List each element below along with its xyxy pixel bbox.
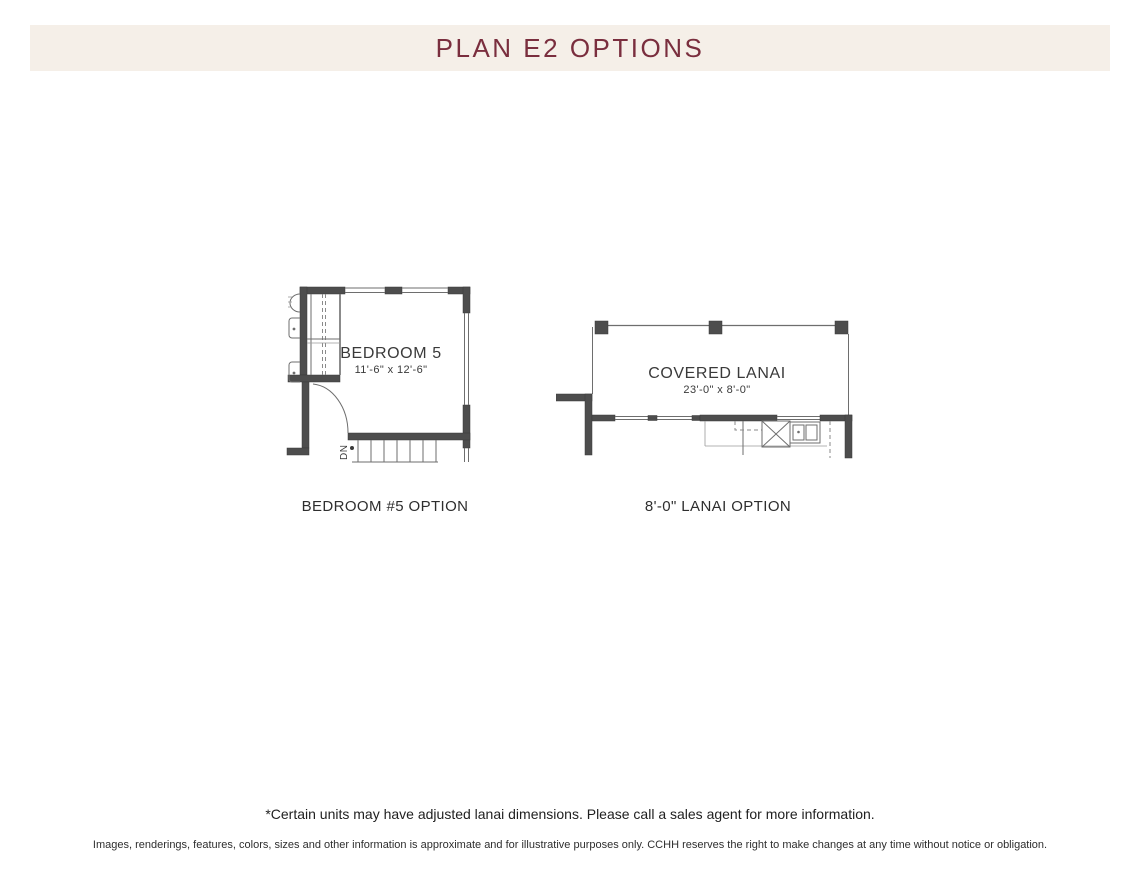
plan-options-page: PLAN E2 OPTIONS	[0, 0, 1140, 880]
lanai-room-dimensions: 23'-0" x 8'-0"	[683, 384, 750, 396]
footnote-text: *Certain units may have adjusted lanai d…	[0, 806, 1140, 822]
bedroom-top-wall	[300, 287, 470, 294]
bedroom-bottom-wall	[348, 433, 470, 440]
bedroom-room-label: BEDROOM 5	[340, 345, 441, 362]
bedroom-closet	[307, 294, 340, 375]
door-swing-arc	[313, 384, 348, 433]
lanai-house-wall	[592, 415, 852, 458]
stairs-dn-label: DN	[339, 445, 350, 460]
stairs: DN	[339, 440, 438, 462]
lanai-option-caption: 8'-0" LANAI OPTION	[600, 498, 836, 515]
lanai-floor-plan: COVERED LANAI 23'-0" x 8'-0"	[556, 318, 856, 460]
lanai-room-label: COVERED LANAI	[648, 365, 786, 382]
disclaimer-text: Images, renderings, features, colors, si…	[0, 839, 1140, 851]
bedroom5-floor-plan: DN BEDROOM 5 11'-6" x 12'-6"	[283, 281, 475, 467]
bedroom-option-caption: BEDROOM #5 OPTION	[280, 498, 490, 515]
lanai-left-wall	[556, 394, 592, 455]
bedroom-room-dimensions: 11'-6" x 12'-6"	[355, 364, 428, 376]
interior-fixtures	[705, 421, 830, 458]
bedroom-left-wall	[287, 287, 340, 455]
bathroom-fixtures	[288, 294, 300, 382]
page-title: PLAN E2 OPTIONS	[436, 33, 705, 64]
header-banner: PLAN E2 OPTIONS	[30, 25, 1110, 71]
